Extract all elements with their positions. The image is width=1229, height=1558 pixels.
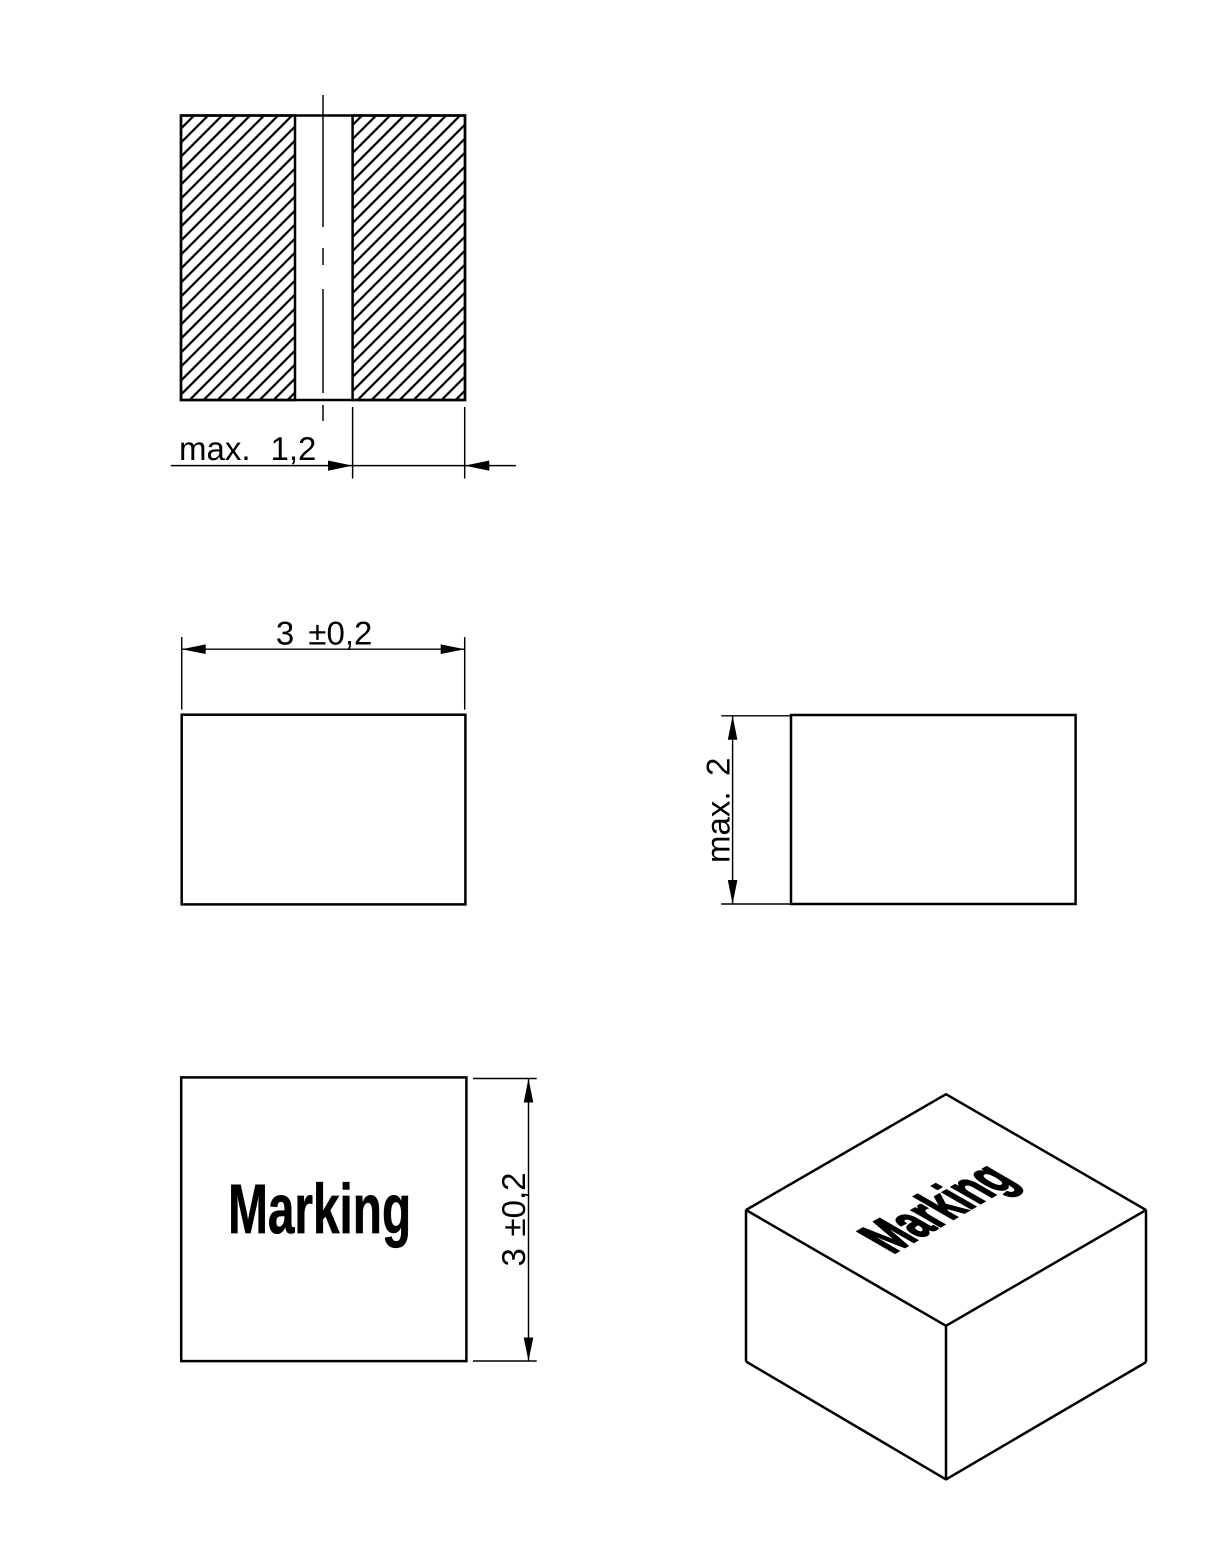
svg-text:3: 3 xyxy=(495,1248,532,1266)
svg-text:max.: max. xyxy=(699,791,736,863)
svg-text:2: 2 xyxy=(699,758,736,776)
svg-text:max.: max. xyxy=(179,430,251,467)
svg-text:±0,2: ±0,2 xyxy=(495,1173,532,1237)
svg-text:±0,2: ±0,2 xyxy=(308,614,372,651)
svg-text:1,2: 1,2 xyxy=(271,430,317,467)
svg-text:3: 3 xyxy=(276,614,294,651)
svg-text:Marking: Marking xyxy=(228,1170,411,1248)
